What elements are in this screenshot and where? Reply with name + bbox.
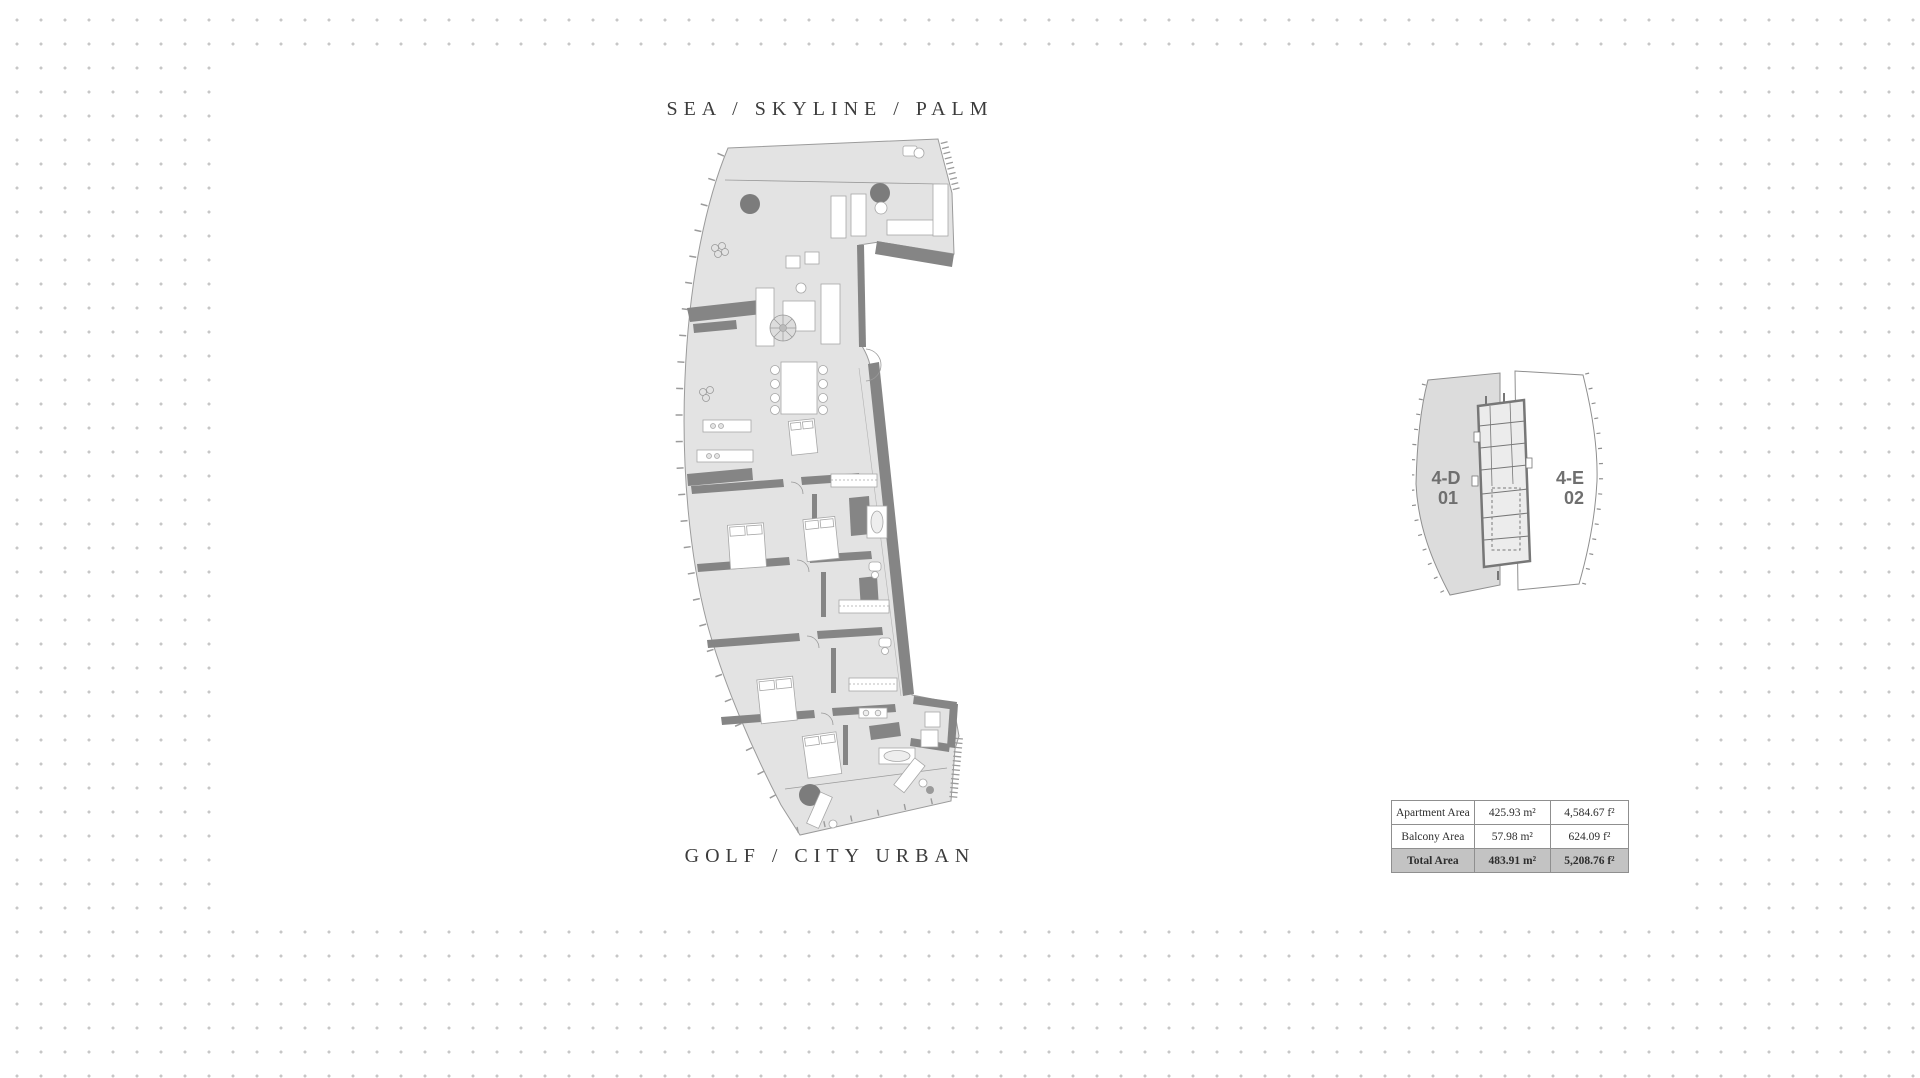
spiral-stair [770, 315, 796, 341]
bed [788, 419, 817, 456]
area-table-row-total: Total Area 483.91 m² 5,208.76 f² [1392, 849, 1629, 873]
key-plan-left-unit-number: 01 [1438, 488, 1458, 508]
orientation-label-top: SEA / SKYLINE / PALM [640, 98, 1020, 121]
key-plan-right-unit-code: 4-E [1556, 468, 1584, 488]
area-label: Apartment Area [1392, 801, 1475, 825]
key-plan: 4-D 01 4-E 02 [1412, 366, 1604, 604]
page: { "document": { "orientation_top": "SEA … [0, 0, 1920, 1078]
bed [757, 676, 797, 724]
area-label: Balcony Area [1392, 825, 1475, 849]
key-plan-right-unit-number: 02 [1564, 488, 1584, 508]
area-table-row-balcony: Balcony Area 57.98 m² 624.09 f² [1392, 825, 1629, 849]
area-metric: 483.91 m² [1474, 849, 1550, 873]
area-imperial: 5,208.76 f² [1550, 849, 1628, 873]
area-metric: 425.93 m² [1474, 801, 1550, 825]
bed [802, 732, 842, 778]
bed [728, 523, 767, 569]
orientation-label-bottom: GOLF / CITY URBAN [640, 845, 1020, 868]
bed [803, 516, 839, 561]
area-imperial: 624.09 f² [1550, 825, 1628, 849]
floor-plan-drawing [663, 138, 993, 850]
key-plan-left-unit-code: 4-D [1431, 468, 1460, 488]
area-table: Apartment Area 425.93 m² 4,584.67 f² Bal… [1391, 800, 1629, 873]
area-label: Total Area [1392, 849, 1475, 873]
area-table-row-apartment: Apartment Area 425.93 m² 4,584.67 f² [1392, 801, 1629, 825]
area-metric: 57.98 m² [1474, 825, 1550, 849]
area-imperial: 4,584.67 f² [1550, 801, 1628, 825]
